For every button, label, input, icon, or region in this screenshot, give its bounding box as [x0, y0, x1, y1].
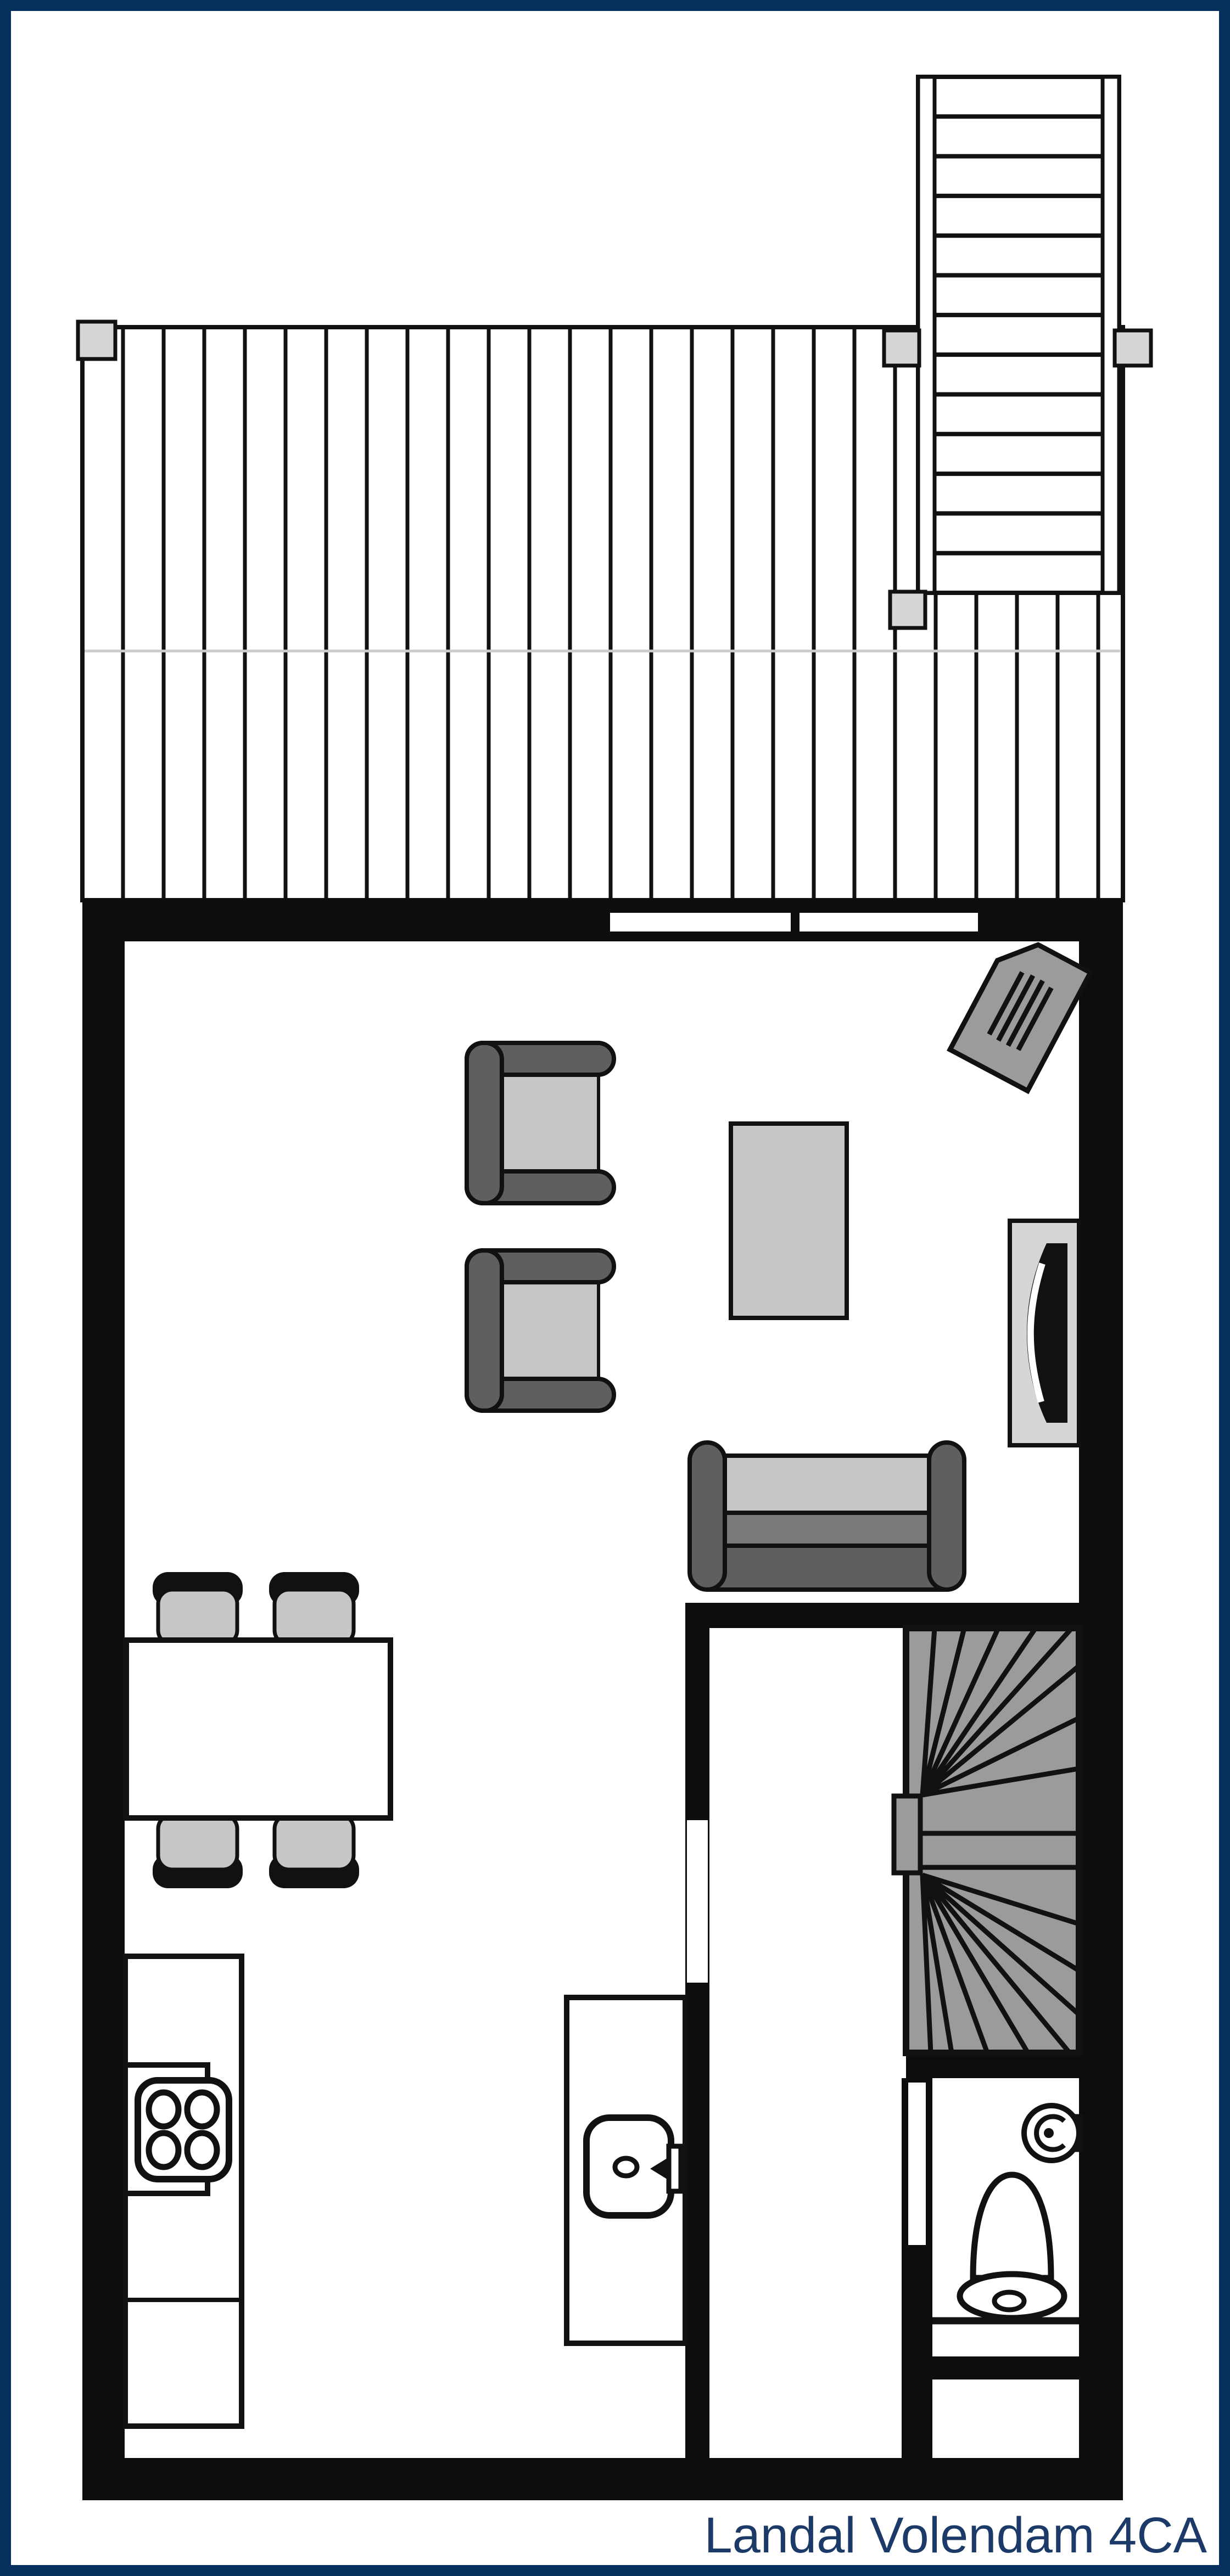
- deck-post-top-left: [78, 322, 115, 359]
- deck-post-right-of-stairs: [1115, 330, 1151, 366]
- armchair-2-seat: [502, 1282, 599, 1379]
- external-staircase: [918, 77, 1119, 593]
- floorplan-page: Landal Volendam 4CA: [0, 0, 1230, 2576]
- dining-table: [126, 1640, 390, 1818]
- chair-seat: [158, 1815, 237, 1870]
- coffee-table: [731, 1124, 847, 1318]
- armchair-1-seat: [502, 1075, 599, 1171]
- sofa-right-arm: [929, 1443, 964, 1590]
- armchair-1-back: [467, 1043, 502, 1203]
- plan-title: Landal Volendam 4CA: [704, 2507, 1207, 2563]
- burner-icon: [149, 2092, 178, 2126]
- armchair-2-back: [467, 1250, 502, 1411]
- wc-door-opening: [908, 2083, 926, 2245]
- dining-chair-top-left: [153, 1572, 243, 1645]
- wash-basin: [1024, 2106, 1081, 2160]
- top-wall-window-left: [610, 913, 791, 931]
- faucet-base: [669, 2146, 681, 2191]
- floorplan-drawing: Landal Volendam 4CA: [0, 0, 1230, 2576]
- kitchen-hall-wall: [685, 1603, 709, 2458]
- chair-seat: [158, 1590, 237, 1645]
- sofa: [690, 1443, 964, 1590]
- sink-drain: [615, 2158, 637, 2176]
- burner-icon: [149, 2133, 178, 2167]
- wc-bottom-wall: [902, 2356, 1079, 2379]
- kitchen-door-opening: [687, 1820, 708, 1983]
- chair-seat: [275, 1815, 354, 1870]
- armchair-1: [467, 1043, 614, 1203]
- sofa-left-arm: [690, 1443, 725, 1590]
- hall-top-wall: [685, 1603, 1079, 1628]
- burner-icon: [187, 2092, 217, 2126]
- toilet-flush-button: [994, 2292, 1024, 2310]
- tv-cabinet: [1010, 1221, 1079, 1445]
- dining-chair-bottom-left: [153, 1815, 243, 1888]
- armchair-2: [467, 1250, 614, 1411]
- kitchen: [125, 1956, 242, 2426]
- stair-bottom-wall: [906, 2053, 1079, 2078]
- sink-unit: [567, 1997, 685, 2343]
- burner-icon: [187, 2133, 217, 2167]
- dining-chair-bottom-right: [269, 1815, 359, 1888]
- chair-seat: [275, 1590, 354, 1645]
- deck-post-left-of-stairs: [884, 330, 919, 366]
- top-wall-window-right: [800, 913, 978, 931]
- dining-chair-top-right: [269, 1572, 359, 1645]
- internal-staircase: [894, 1628, 1079, 2053]
- sofa-front-edge: [725, 1513, 929, 1547]
- sofa-back: [690, 1546, 964, 1590]
- basin-drain: [1044, 2128, 1054, 2138]
- deck-post-stair-bottom: [890, 592, 925, 628]
- staircase-newel-post: [894, 1796, 920, 1873]
